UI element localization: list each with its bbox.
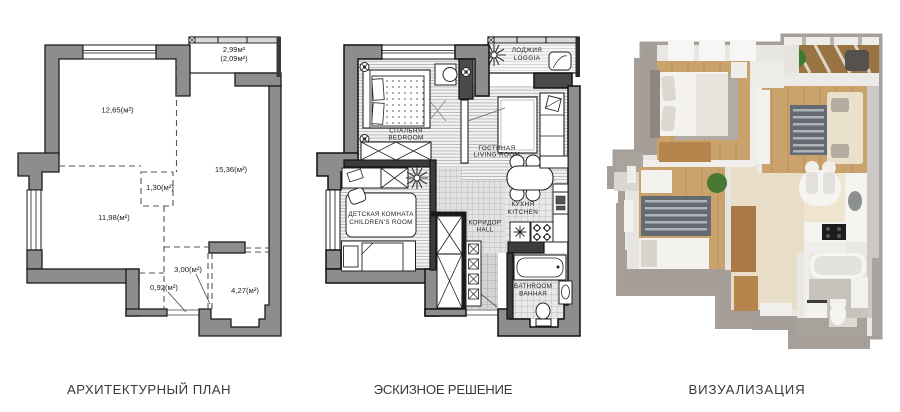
- svg-text:LOGGIA: LOGGIA: [514, 55, 541, 62]
- svg-text:2,99м²: 2,99м²: [223, 45, 246, 54]
- svg-text:4,27(м²): 4,27(м²): [231, 286, 259, 295]
- svg-text:КОРИДОР: КОРИДОР: [469, 220, 502, 227]
- svg-text:ДЕТСКАЯ КОМНАТА: ДЕТСКАЯ КОМНАТА: [348, 211, 414, 218]
- svg-text:1,30(м²): 1,30(м²): [146, 183, 174, 192]
- svg-text:BATHROOM: BATHROOM: [514, 283, 552, 290]
- svg-text:(2,09м²): (2,09м²): [220, 54, 248, 63]
- svg-text:КУХНЯ: КУХНЯ: [511, 201, 534, 208]
- svg-text:ВАННАЯ: ВАННАЯ: [519, 291, 547, 298]
- svg-text:АРХИТЕКТУРНЫЙ ПЛАН: АРХИТЕКТУРНЫЙ ПЛАН: [67, 382, 231, 397]
- svg-text:CHILDREN'S ROOM: CHILDREN'S ROOM: [349, 219, 412, 226]
- svg-text:HALL: HALL: [477, 227, 494, 234]
- svg-text:KITCHEN: KITCHEN: [508, 209, 538, 216]
- svg-text:BEDROOM: BEDROOM: [388, 135, 423, 142]
- svg-text:3,00(м²): 3,00(м²): [174, 265, 202, 274]
- svg-text:0,92(м²): 0,92(м²): [150, 283, 178, 292]
- svg-text:ВИЗУАЛИЗАЦИЯ: ВИЗУАЛИЗАЦИЯ: [688, 382, 805, 397]
- svg-text:СПАЛЬНЯ: СПАЛЬНЯ: [389, 128, 423, 135]
- svg-text:ЭСКИЗНОЕ РЕШЕНИЕ: ЭСКИЗНОЕ РЕШЕНИЕ: [374, 382, 513, 397]
- svg-text:12,65(м²): 12,65(м²): [101, 106, 134, 115]
- svg-text:ЛОДЖИЯ: ЛОДЖИЯ: [512, 47, 542, 54]
- svg-text:11,98(м²): 11,98(м²): [98, 213, 130, 222]
- svg-text:15,36(м²): 15,36(м²): [215, 165, 248, 174]
